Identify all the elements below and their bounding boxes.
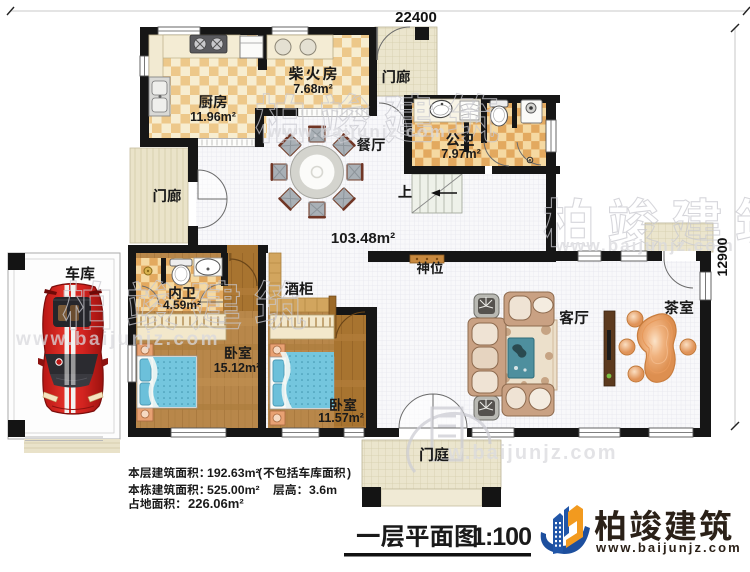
- svg-text:7.97m²: 7.97m²: [441, 147, 481, 161]
- svg-text:7.68m²: 7.68m²: [293, 82, 333, 96]
- svg-text:www.baijunjz.com: www.baijunjz.com: [15, 329, 220, 350]
- svg-text:12900: 12900: [714, 237, 730, 276]
- svg-text:226.06m²: 226.06m²: [188, 496, 244, 511]
- svg-text:w.baijunjz.com: w.baijunjz.com: [447, 442, 618, 464]
- svg-text:11.57m²: 11.57m²: [318, 411, 364, 425]
- svg-text:4.59m²: 4.59m²: [163, 298, 201, 312]
- svg-text:www.baijunjz.com: www.baijunjz.com: [555, 236, 735, 255]
- svg-text:www.baijunjz.com: www.baijunjz.com: [595, 540, 742, 555]
- svg-text:103.48m²: 103.48m²: [331, 230, 395, 247]
- svg-text:11.96m²: 11.96m²: [190, 110, 236, 124]
- svg-text:): ): [347, 466, 351, 480]
- svg-text:192.63m²: 192.63m²: [207, 466, 260, 480]
- svg-text:3.6m: 3.6m: [309, 483, 337, 497]
- svg-text:525.00m²: 525.00m²: [207, 483, 260, 497]
- svg-text:15.12m²: 15.12m²: [214, 361, 261, 375]
- svg-text:22400: 22400: [395, 9, 437, 26]
- svg-text:1:100: 1:100: [472, 523, 531, 551]
- svg-text:www.baijunjz.com: www.baijunjz.com: [267, 122, 447, 141]
